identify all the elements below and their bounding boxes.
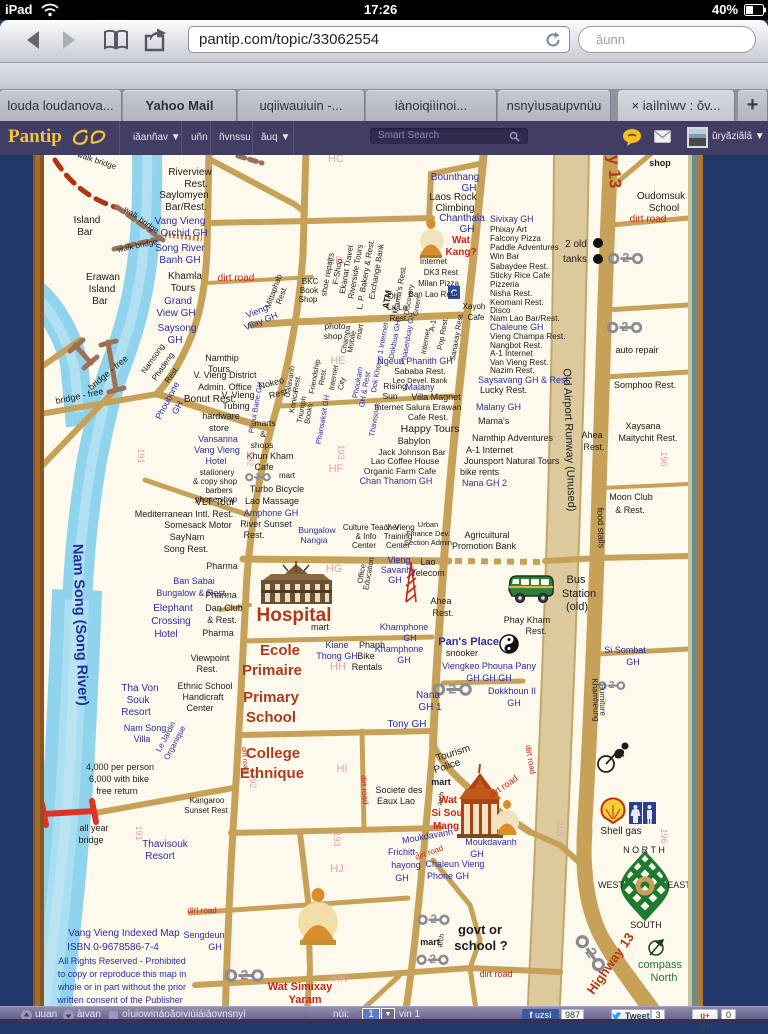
svg-text:Wat: Wat bbox=[439, 795, 458, 806]
svg-text:Island: Island bbox=[89, 284, 116, 295]
svg-text:Tours: Tours bbox=[171, 283, 195, 294]
svg-text:Sun: Sun bbox=[382, 391, 397, 401]
svg-text:School: School bbox=[649, 203, 680, 214]
svg-text:View GH: View GH bbox=[156, 308, 195, 319]
svg-text:GH: GH bbox=[208, 942, 222, 952]
svg-text:La La: La La bbox=[387, 303, 408, 312]
svg-text:Wat Simixay: Wat Simixay bbox=[268, 981, 333, 993]
svg-text:Finance Dev.: Finance Dev. bbox=[406, 529, 450, 538]
svg-text:HG: HG bbox=[326, 563, 343, 575]
svg-text:Center: Center bbox=[352, 541, 376, 550]
svg-text:Malany: Malany bbox=[405, 382, 435, 392]
svg-text:Nazim Rest.: Nazim Rest. bbox=[490, 366, 535, 375]
svg-text:Khamla: Khamla bbox=[168, 271, 202, 282]
svg-text:Phixay Art: Phixay Art bbox=[490, 225, 528, 234]
svg-text:River Sunset: River Sunset bbox=[240, 519, 292, 529]
svg-text:& copy shop: & copy shop bbox=[193, 477, 238, 486]
svg-text:Xayoh: Xayoh bbox=[463, 302, 486, 311]
svg-text:School: School bbox=[246, 709, 296, 726]
svg-text:Lucky Rest.: Lucky Rest. bbox=[480, 385, 527, 395]
svg-text:Vang Vieng: Vang Vieng bbox=[155, 216, 206, 227]
svg-text:Grand: Grand bbox=[164, 296, 192, 307]
svg-text:GH: GH bbox=[397, 655, 411, 665]
svg-text:Si Sombat: Si Sombat bbox=[604, 645, 646, 655]
svg-text:Bar: Bar bbox=[77, 227, 93, 238]
svg-text:Island: Island bbox=[74, 215, 101, 226]
svg-text:2: 2 bbox=[621, 319, 628, 334]
svg-text:GH: GH bbox=[507, 698, 521, 708]
svg-text:2: 2 bbox=[255, 472, 260, 482]
svg-text:V. Vieng District: V. Vieng District bbox=[193, 370, 257, 380]
svg-text:Saylomyen: Saylomyen bbox=[159, 190, 208, 201]
svg-text:Ethnic School: Ethnic School bbox=[177, 681, 232, 691]
svg-text:SOUTH: SOUTH bbox=[630, 920, 662, 930]
svg-text:Banh GH: Banh GH bbox=[159, 255, 200, 266]
svg-text:Savanh: Savanh bbox=[381, 565, 412, 575]
svg-text:WEST: WEST bbox=[598, 880, 625, 890]
svg-text:2: 2 bbox=[609, 680, 615, 691]
svg-text:hardware: hardware bbox=[202, 411, 240, 421]
svg-text:Promotion Bank: Promotion Bank bbox=[452, 541, 517, 551]
svg-text:Organic Farm Cafe: Organic Farm Cafe bbox=[364, 466, 437, 476]
svg-text:HF: HF bbox=[329, 463, 344, 475]
svg-text:HK: HK bbox=[332, 973, 348, 985]
svg-text:& Rest.: & Rest. bbox=[207, 615, 237, 625]
svg-text:Win Bar: Win Bar bbox=[490, 252, 519, 261]
svg-text:2: 2 bbox=[429, 953, 436, 966]
svg-text:Chaleun Vieng: Chaleun Vieng bbox=[426, 859, 485, 869]
svg-text:bike rents: bike rents bbox=[460, 467, 500, 477]
svg-text:Shell gas: Shell gas bbox=[600, 826, 641, 837]
svg-text:Furniture: Furniture bbox=[597, 684, 607, 717]
svg-text:Dokkhoun II: Dokkhoun II bbox=[488, 686, 536, 696]
svg-text:&: & bbox=[260, 429, 266, 439]
svg-text:Nana GH 2: Nana GH 2 bbox=[462, 478, 507, 488]
svg-text:Rest.: Rest. bbox=[583, 442, 604, 452]
svg-text:Moon Club: Moon Club bbox=[609, 492, 653, 502]
svg-text:Thong GH: Thong GH bbox=[316, 651, 358, 661]
svg-text:Nam Song: Nam Song bbox=[124, 723, 167, 733]
svg-text:dirt road: dirt road bbox=[187, 906, 216, 915]
svg-text:Kangaroo: Kangaroo bbox=[190, 796, 225, 805]
svg-text:SayNam: SayNam bbox=[170, 532, 205, 542]
svg-text:Tha Von: Tha Von bbox=[121, 683, 158, 694]
svg-text:Bus: Bus bbox=[567, 574, 586, 586]
svg-text:Book: Book bbox=[300, 286, 319, 295]
svg-text:mart: mart bbox=[311, 622, 329, 632]
svg-text:Song Rest.: Song Rest. bbox=[164, 544, 209, 554]
svg-text:barbers: barbers bbox=[205, 486, 232, 495]
svg-text:Oudomsuk: Oudomsuk bbox=[637, 191, 686, 202]
svg-text:A-1 Internet: A-1 Internet bbox=[490, 349, 534, 358]
svg-text:Bonut Rest.: Bonut Rest. bbox=[184, 394, 236, 405]
svg-text:Yaram: Yaram bbox=[288, 994, 321, 1006]
svg-text:Maitychit Rest.: Maitychit Rest. bbox=[618, 433, 677, 443]
svg-text:Rentals: Rentals bbox=[352, 662, 383, 672]
svg-text:Cafe: Cafe bbox=[254, 462, 273, 472]
svg-text:all year: all year bbox=[79, 823, 108, 833]
svg-text:Rest.: Rest. bbox=[196, 664, 217, 674]
svg-text:VLT Tour: VLT Tour bbox=[195, 497, 235, 508]
svg-text:Jounsport Natural Tours: Jounsport Natural Tours bbox=[464, 456, 560, 466]
svg-text:HI: HI bbox=[337, 763, 348, 775]
svg-text:Wat: Wat bbox=[452, 235, 471, 246]
svg-text:Babylon: Babylon bbox=[398, 436, 431, 446]
svg-text:Lao Massage: Lao Massage bbox=[245, 496, 299, 506]
svg-text:Vang Vieng: Vang Vieng bbox=[194, 445, 240, 455]
svg-text:Ban Lao Rest: Ban Lao Rest bbox=[409, 290, 458, 299]
svg-text:bridge: bridge bbox=[78, 835, 103, 845]
svg-text:Chaleune GH: Chaleune GH bbox=[490, 322, 543, 332]
svg-text:shop: shop bbox=[649, 158, 671, 168]
svg-text:Riverview: Riverview bbox=[168, 167, 212, 178]
svg-text:& Rest.: & Rest. bbox=[615, 505, 645, 515]
svg-text:Internet: Internet bbox=[420, 257, 448, 266]
svg-text:196: 196 bbox=[659, 828, 669, 843]
svg-text:Namthip Adventures: Namthip Adventures bbox=[472, 433, 554, 443]
svg-text:Internet Salura Erawan: Internet Salura Erawan bbox=[375, 402, 462, 412]
svg-text:Sengdeun: Sengdeun bbox=[183, 930, 224, 940]
svg-text:Bounthang: Bounthang bbox=[431, 172, 479, 183]
svg-text:Hotel: Hotel bbox=[205, 456, 226, 466]
svg-text:shops: shops bbox=[251, 440, 274, 450]
svg-text:Mediterranean Intl. Rest.: Mediterranean Intl. Rest. bbox=[135, 509, 234, 519]
svg-text:school ?: school ? bbox=[454, 938, 508, 953]
svg-text:Admin. Office: Admin. Office bbox=[198, 382, 252, 392]
svg-text:Phay Kham: Phay Kham bbox=[504, 615, 551, 625]
svg-text:Ban Sabai: Ban Sabai bbox=[173, 576, 215, 586]
svg-text:Sticky Rice Cafe: Sticky Rice Cafe bbox=[490, 271, 551, 280]
svg-text:Cafe Rest.: Cafe Rest. bbox=[408, 412, 448, 422]
svg-text:Ethnique: Ethnique bbox=[240, 765, 304, 782]
svg-text:GH: GH bbox=[626, 657, 640, 667]
svg-text:Frichitt-: Frichitt- bbox=[388, 847, 418, 857]
svg-text:Pan's Place: Pan's Place bbox=[438, 636, 499, 648]
svg-text:Xaysana: Xaysana bbox=[625, 421, 660, 431]
svg-text:Rising: Rising bbox=[383, 381, 407, 391]
svg-text:Primaire: Primaire bbox=[242, 662, 302, 679]
svg-text:2: 2 bbox=[240, 967, 248, 983]
svg-text:Lao: Lao bbox=[420, 557, 435, 567]
svg-text:GH: GH bbox=[388, 575, 402, 585]
svg-text:EAST: EAST bbox=[667, 880, 691, 890]
svg-text:food stalls: food stalls bbox=[595, 507, 606, 548]
svg-text:4,000 per person: 4,000 per person bbox=[86, 762, 154, 772]
svg-text:College: College bbox=[246, 745, 300, 762]
svg-text:Pharma: Pharma bbox=[202, 628, 234, 638]
svg-text:Lao Coffee House: Lao Coffee House bbox=[371, 456, 440, 466]
svg-text:marts: marts bbox=[254, 418, 275, 428]
svg-text:Bike: Bike bbox=[357, 651, 375, 661]
svg-text:Viengkeo Phouna Pany: Viengkeo Phouna Pany bbox=[442, 661, 536, 671]
svg-text:Rest.: Rest. bbox=[184, 179, 207, 190]
svg-text:Villa: Villa bbox=[134, 734, 151, 744]
svg-text:Malany GH: Malany GH bbox=[476, 402, 521, 412]
svg-text:Resort: Resort bbox=[145, 851, 175, 862]
svg-text:Eaux Lao: Eaux Lao bbox=[377, 796, 415, 806]
svg-text:All Rights Reserved - Prohibit: All Rights Reserved - Prohibited bbox=[58, 956, 186, 966]
svg-text:Souk: Souk bbox=[127, 695, 151, 706]
svg-text:Telecom: Telecom bbox=[411, 568, 445, 578]
svg-text:192: 192 bbox=[245, 451, 255, 466]
svg-text:HH: HH bbox=[330, 661, 346, 673]
svg-text:to copy or reproduce this map: to copy or reproduce this map in bbox=[58, 969, 187, 979]
svg-text:Nana: Nana bbox=[416, 690, 440, 701]
svg-text:Moukdavanh: Moukdavanh bbox=[465, 837, 517, 847]
svg-text:dirt road: dirt road bbox=[218, 273, 255, 284]
svg-text:dirt road: dirt road bbox=[630, 214, 667, 225]
svg-text:Dan Club: Dan Club bbox=[205, 603, 243, 613]
svg-text:Nisha Rest.: Nisha Rest. bbox=[490, 289, 532, 298]
svg-text:Ahea: Ahea bbox=[581, 430, 602, 440]
svg-text:2: 2 bbox=[448, 681, 456, 697]
svg-text:Crossing: Crossing bbox=[151, 616, 190, 627]
svg-text:Bar/Rest.: Bar/Rest. bbox=[165, 202, 207, 213]
svg-text:Sababa Rest.: Sababa Rest. bbox=[394, 366, 446, 376]
svg-text:Kiane: Kiane bbox=[325, 640, 348, 650]
svg-text:Station: Station bbox=[562, 588, 596, 600]
svg-text:mart: mart bbox=[279, 471, 296, 480]
svg-text:6,000 with bike: 6,000 with bike bbox=[89, 774, 149, 784]
svg-text:Vansanna: Vansanna bbox=[198, 434, 238, 444]
svg-text:Orchid GH: Orchid GH bbox=[160, 228, 207, 239]
svg-text:Sunset Rest: Sunset Rest bbox=[184, 806, 228, 815]
svg-text:y 13: y 13 bbox=[604, 155, 625, 189]
svg-text:N O R T H: N O R T H bbox=[623, 845, 665, 855]
svg-text:Pharma: Pharma bbox=[206, 561, 238, 571]
svg-text:Falcony Pizza: Falcony Pizza bbox=[490, 234, 541, 243]
svg-text:Rest.: Rest. bbox=[432, 608, 453, 618]
svg-text:shop: shop bbox=[324, 331, 343, 341]
svg-text:Chan Thanom GH: Chan Thanom GH bbox=[360, 476, 433, 486]
svg-text:free return: free return bbox=[96, 786, 138, 796]
svg-text:Resort: Resort bbox=[121, 707, 151, 718]
svg-text:GH: GH bbox=[460, 224, 475, 235]
svg-text:Somphoo Rest.: Somphoo Rest. bbox=[614, 380, 676, 390]
svg-text:195: 195 bbox=[555, 821, 565, 836]
svg-text:Pizzeria: Pizzeria bbox=[490, 280, 520, 289]
svg-text:Ngeun Phanith GH: Ngeun Phanith GH bbox=[377, 356, 453, 366]
svg-text:Urban: Urban bbox=[418, 520, 438, 529]
svg-text:Vieng: Vieng bbox=[388, 555, 411, 565]
svg-text:ISBN 0-9678586-7-4: ISBN 0-9678586-7-4 bbox=[67, 942, 159, 953]
svg-text:Thavisouk: Thavisouk bbox=[142, 839, 189, 850]
svg-text:Laos Rock: Laos Rock bbox=[429, 192, 477, 203]
svg-text:Oh: Oh bbox=[388, 292, 399, 301]
svg-text:Tony GH: Tony GH bbox=[388, 719, 427, 730]
svg-text:auto repair: auto repair bbox=[615, 345, 658, 355]
svg-text:Phanh: Phanh bbox=[359, 640, 385, 650]
svg-text:Paddle Adventures: Paddle Adventures bbox=[490, 243, 559, 252]
svg-text:A-1 Internet: A-1 Internet bbox=[466, 445, 514, 455]
svg-text:Saysong: Saysong bbox=[158, 323, 197, 334]
svg-text:Namthip: Namthip bbox=[205, 353, 239, 363]
svg-text:Sivixay GH: Sivixay GH bbox=[490, 214, 534, 224]
svg-text:Ahea: Ahea bbox=[430, 596, 451, 606]
svg-text:Cafe: Cafe bbox=[468, 313, 485, 322]
svg-text:DK3 Rest: DK3 Rest bbox=[424, 268, 459, 277]
svg-text:dirt road: dirt road bbox=[479, 969, 512, 979]
svg-text:Somesack Motor: Somesack Motor bbox=[164, 520, 232, 530]
svg-text:govt or: govt or bbox=[458, 922, 502, 937]
svg-text:GH GH GH: GH GH GH bbox=[466, 673, 512, 683]
svg-text:written consent of the Publish: written consent of the Publisher bbox=[56, 995, 183, 1005]
svg-text:Rest.: Rest. bbox=[525, 626, 546, 636]
svg-text:Amphone GH: Amphone GH bbox=[244, 508, 299, 518]
svg-text:Elephant: Elephant bbox=[153, 603, 193, 614]
svg-text:Primary: Primary bbox=[243, 689, 300, 706]
svg-text:191: 191 bbox=[136, 448, 146, 463]
svg-text:2: 2 bbox=[622, 250, 629, 265]
svg-text:snooker: snooker bbox=[446, 648, 478, 658]
svg-text:GH: GH bbox=[470, 849, 484, 859]
svg-text:GH 1: GH 1 bbox=[418, 702, 442, 713]
svg-text:Sabaydee Rest.: Sabaydee Rest. bbox=[490, 262, 548, 271]
svg-text:Erawan: Erawan bbox=[86, 272, 120, 283]
svg-text:Rest.: Rest. bbox=[243, 530, 264, 540]
svg-text:Bungalow: Bungalow bbox=[298, 525, 336, 535]
svg-text:Vieng Champa Rest.: Vieng Champa Rest. bbox=[490, 332, 565, 341]
svg-text:North: North bbox=[651, 972, 678, 984]
svg-text:Villa Magnet: Villa Magnet bbox=[411, 392, 461, 402]
svg-text:Phone GH: Phone GH bbox=[427, 871, 469, 881]
svg-text:Nangia: Nangia bbox=[301, 535, 328, 545]
svg-text:BKC: BKC bbox=[302, 277, 319, 286]
svg-text:Mama's: Mama's bbox=[478, 416, 510, 426]
svg-text:Turbo Bicycle: Turbo Bicycle bbox=[250, 484, 304, 494]
svg-text:Handicraft: Handicraft bbox=[182, 692, 224, 702]
svg-text:Kang?: Kang? bbox=[445, 247, 476, 258]
svg-text:Milan Pizza: Milan Pizza bbox=[418, 279, 459, 288]
svg-text:Song River: Song River bbox=[155, 243, 205, 254]
svg-text:193: 193 bbox=[332, 831, 342, 846]
svg-text:Agricultural: Agricultural bbox=[464, 530, 509, 540]
svg-text:Chanthala: Chanthala bbox=[439, 213, 485, 224]
svg-text:Section Admin: Section Admin bbox=[404, 538, 452, 547]
svg-text:Khamphone: Khamphone bbox=[380, 622, 429, 632]
svg-text:Saysavang GH & Rest.: Saysavang GH & Rest. bbox=[478, 375, 571, 385]
svg-text:Viewpoint: Viewpoint bbox=[191, 653, 230, 663]
svg-text:GH: GH bbox=[403, 633, 417, 643]
svg-text:Center: Center bbox=[186, 703, 213, 713]
svg-text:Societe des: Societe des bbox=[375, 785, 423, 795]
svg-text:HJ: HJ bbox=[330, 863, 343, 875]
svg-text:193: 193 bbox=[336, 444, 346, 459]
svg-text:Pharma: Pharma bbox=[205, 590, 237, 600]
svg-text:Si Sou: Si Sou bbox=[431, 808, 462, 819]
svg-text:Bar: Bar bbox=[92, 296, 108, 307]
svg-text:2 old: 2 old bbox=[565, 239, 587, 250]
svg-text:Vang Vieng Indexed Map: Vang Vieng Indexed Map bbox=[68, 928, 180, 939]
svg-text:whole or in part without the p: whole or in part without the prior bbox=[57, 982, 186, 992]
svg-text:Happy Tours: Happy Tours bbox=[401, 423, 460, 435]
svg-text:191: 191 bbox=[134, 825, 144, 840]
svg-text:196: 196 bbox=[659, 451, 669, 466]
svg-text:mart: mart bbox=[431, 777, 451, 787]
svg-text:& Info: & Info bbox=[356, 532, 377, 541]
svg-text:Shop: Shop bbox=[299, 295, 318, 304]
svg-text:GH: GH bbox=[395, 873, 409, 883]
svg-text:compass: compass bbox=[638, 959, 683, 971]
svg-text:GH: GH bbox=[168, 335, 183, 346]
svg-text:2: 2 bbox=[430, 913, 437, 926]
svg-text:(old): (old) bbox=[566, 601, 588, 613]
svg-text:stationery: stationery bbox=[200, 468, 235, 477]
svg-text:tanks: tanks bbox=[563, 254, 587, 265]
svg-text:Hotel: Hotel bbox=[154, 629, 177, 640]
svg-text:store: store bbox=[209, 423, 229, 433]
svg-text:Ecole: Ecole bbox=[260, 642, 300, 659]
